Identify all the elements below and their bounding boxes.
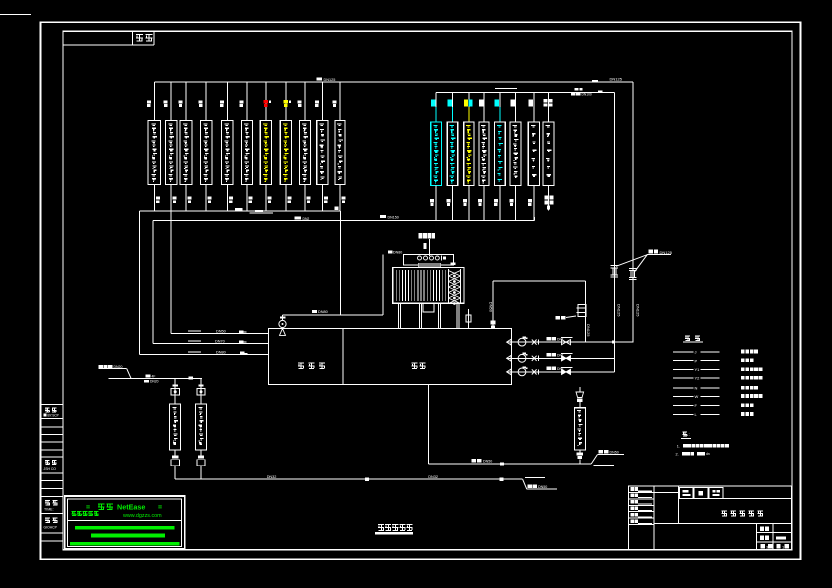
svg-text:DN150: DN150 (388, 216, 399, 220)
svg-text:P: P (695, 358, 698, 363)
svg-text:DN50: DN50 (538, 485, 547, 489)
svg-text:=: = (86, 504, 90, 511)
svg-text:JSH CO: JSH CO (44, 467, 57, 471)
svg-text:DN125: DN125 (636, 304, 641, 317)
svg-text:Y2: Y2 (695, 376, 701, 381)
svg-text:GIOHCP: GIOHCP (44, 526, 58, 530)
svg-text:N: N (695, 386, 698, 391)
svg-text:dn: dn (706, 452, 710, 456)
svg-text:DN50: DN50 (483, 460, 492, 464)
svg-text:DN70: DN70 (215, 339, 225, 343)
svg-text:NetEase: NetEase (117, 503, 145, 512)
svg-text:BY.SCP: BY.SCP (48, 414, 59, 418)
svg-text::: : (689, 432, 690, 437)
svg-text:DN50: DN50 (610, 451, 619, 455)
svg-text:DN32: DN32 (428, 475, 438, 479)
svg-text:Y1: Y1 (695, 367, 701, 372)
svg-text:4F: 4F (152, 374, 156, 378)
svg-text:DN50: DN50 (216, 329, 226, 333)
svg-text:DN125: DN125 (324, 78, 336, 82)
svg-text:DN80: DN80 (318, 310, 328, 314)
svg-text:DN80: DN80 (216, 351, 226, 355)
svg-text:TIME:: TIME: (44, 508, 54, 512)
svg-text:DN20: DN20 (150, 380, 159, 384)
svg-text:2.: 2. (676, 453, 679, 457)
svg-text:=: = (158, 504, 162, 511)
svg-text:W: W (695, 394, 699, 399)
svg-text:www.dgzzs.com: www.dgzzs.com (122, 513, 162, 519)
svg-text:DN80: DN80 (393, 251, 402, 255)
svg-text:DN125: DN125 (610, 76, 623, 81)
svg-text:DN32: DN32 (267, 475, 277, 479)
svg-text:DN125: DN125 (586, 324, 591, 337)
svg-text:1.: 1. (677, 444, 680, 448)
svg-text:J: J (695, 350, 697, 355)
svg-text:DN125: DN125 (660, 250, 673, 255)
svg-text:DN50: DN50 (489, 302, 494, 313)
svg-text:DN125: DN125 (617, 304, 622, 317)
svg-text:DN2: DN2 (303, 217, 310, 221)
svg-text:DN100: DN100 (582, 93, 592, 97)
